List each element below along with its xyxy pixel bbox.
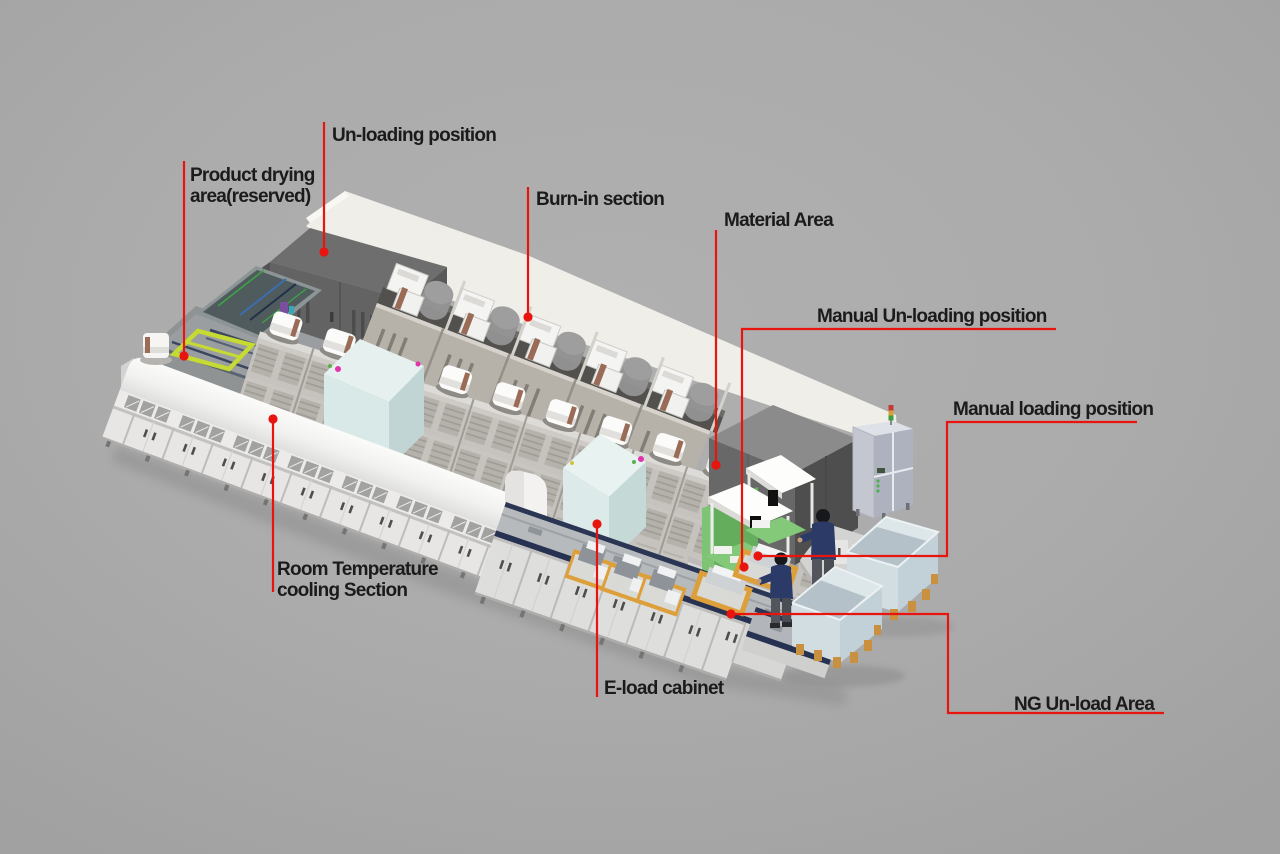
svg-text:Product drying: Product drying bbox=[190, 165, 315, 186]
svg-text:Manual Un-loading position: Manual Un-loading position bbox=[817, 306, 1047, 327]
svg-text:NG Un-load Area: NG Un-load Area bbox=[1014, 694, 1155, 715]
svg-text:Room Temperature: Room Temperature bbox=[277, 559, 438, 580]
svg-text:cooling Section: cooling Section bbox=[277, 580, 407, 601]
svg-text:Manual loading position: Manual loading position bbox=[953, 399, 1153, 420]
svg-text:Un-loading position: Un-loading position bbox=[332, 125, 496, 146]
svg-text:area(reserved): area(reserved) bbox=[190, 186, 311, 207]
svg-text:E-load cabinet: E-load cabinet bbox=[604, 678, 725, 699]
svg-text:Burn-in section: Burn-in section bbox=[536, 189, 664, 210]
svg-text:Material Area: Material Area bbox=[724, 210, 834, 231]
